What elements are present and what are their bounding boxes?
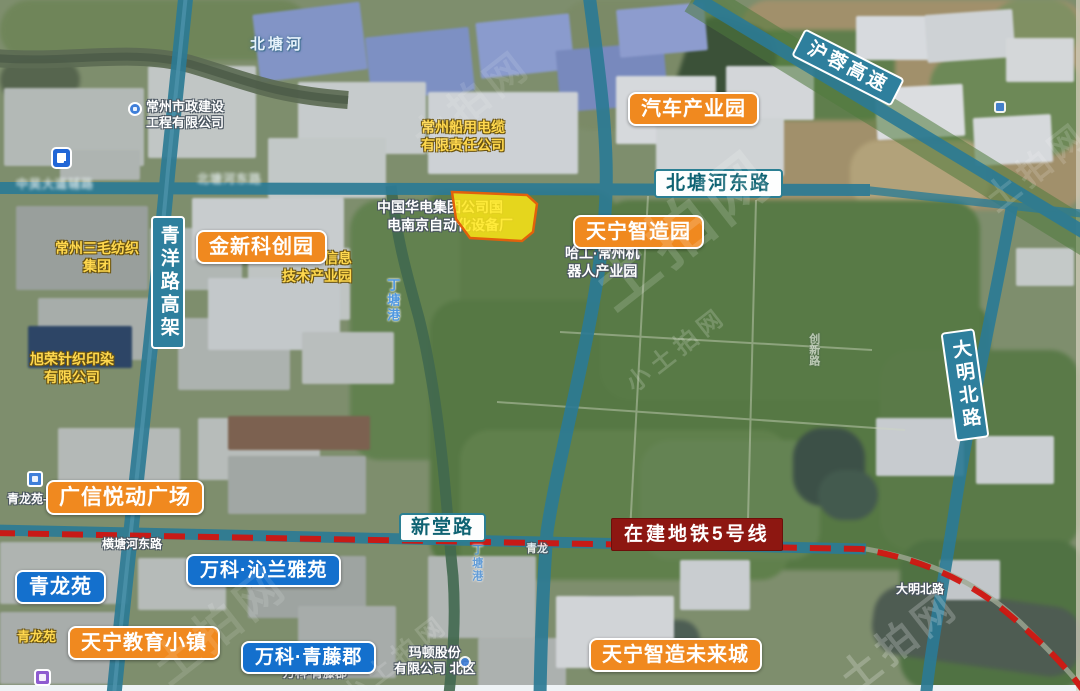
label-vanke-qinlan: 万科·沁兰雅苑 (186, 554, 341, 587)
label-auto-industrial-park: 汽车产业园 (628, 92, 759, 126)
label-tianning-smart-park: 天宁智造园 (573, 215, 704, 249)
label-qinglongyuan: 青龙苑 (15, 570, 106, 604)
label-xintang-road: 新堂路 (399, 513, 486, 542)
label-future-city: 天宁智造未来城 (589, 638, 762, 672)
satellite-map[interactable]: 北塘河 丁塘港 丁塘港 常州市政建设工程有限公司 常州船用电缆有限责任公司 常州… (0, 0, 1080, 691)
label-guangxin-plaza: 广信悦动广场 (46, 480, 204, 515)
label-vanke-qingteng: 万科·青藤郡 (241, 641, 376, 674)
label-education-town: 天宁教育小镇 (68, 626, 220, 660)
label-jinxin-tech-park: 金新科创园 (196, 230, 327, 264)
highlighted-parcel[interactable] (452, 192, 537, 241)
label-beitanghe-east-road: 北塘河东路 (654, 169, 783, 198)
label-metro-line5: 在建地铁5号线 (611, 518, 783, 551)
label-qingyang-elevated: 青洋路高架 (151, 216, 185, 349)
